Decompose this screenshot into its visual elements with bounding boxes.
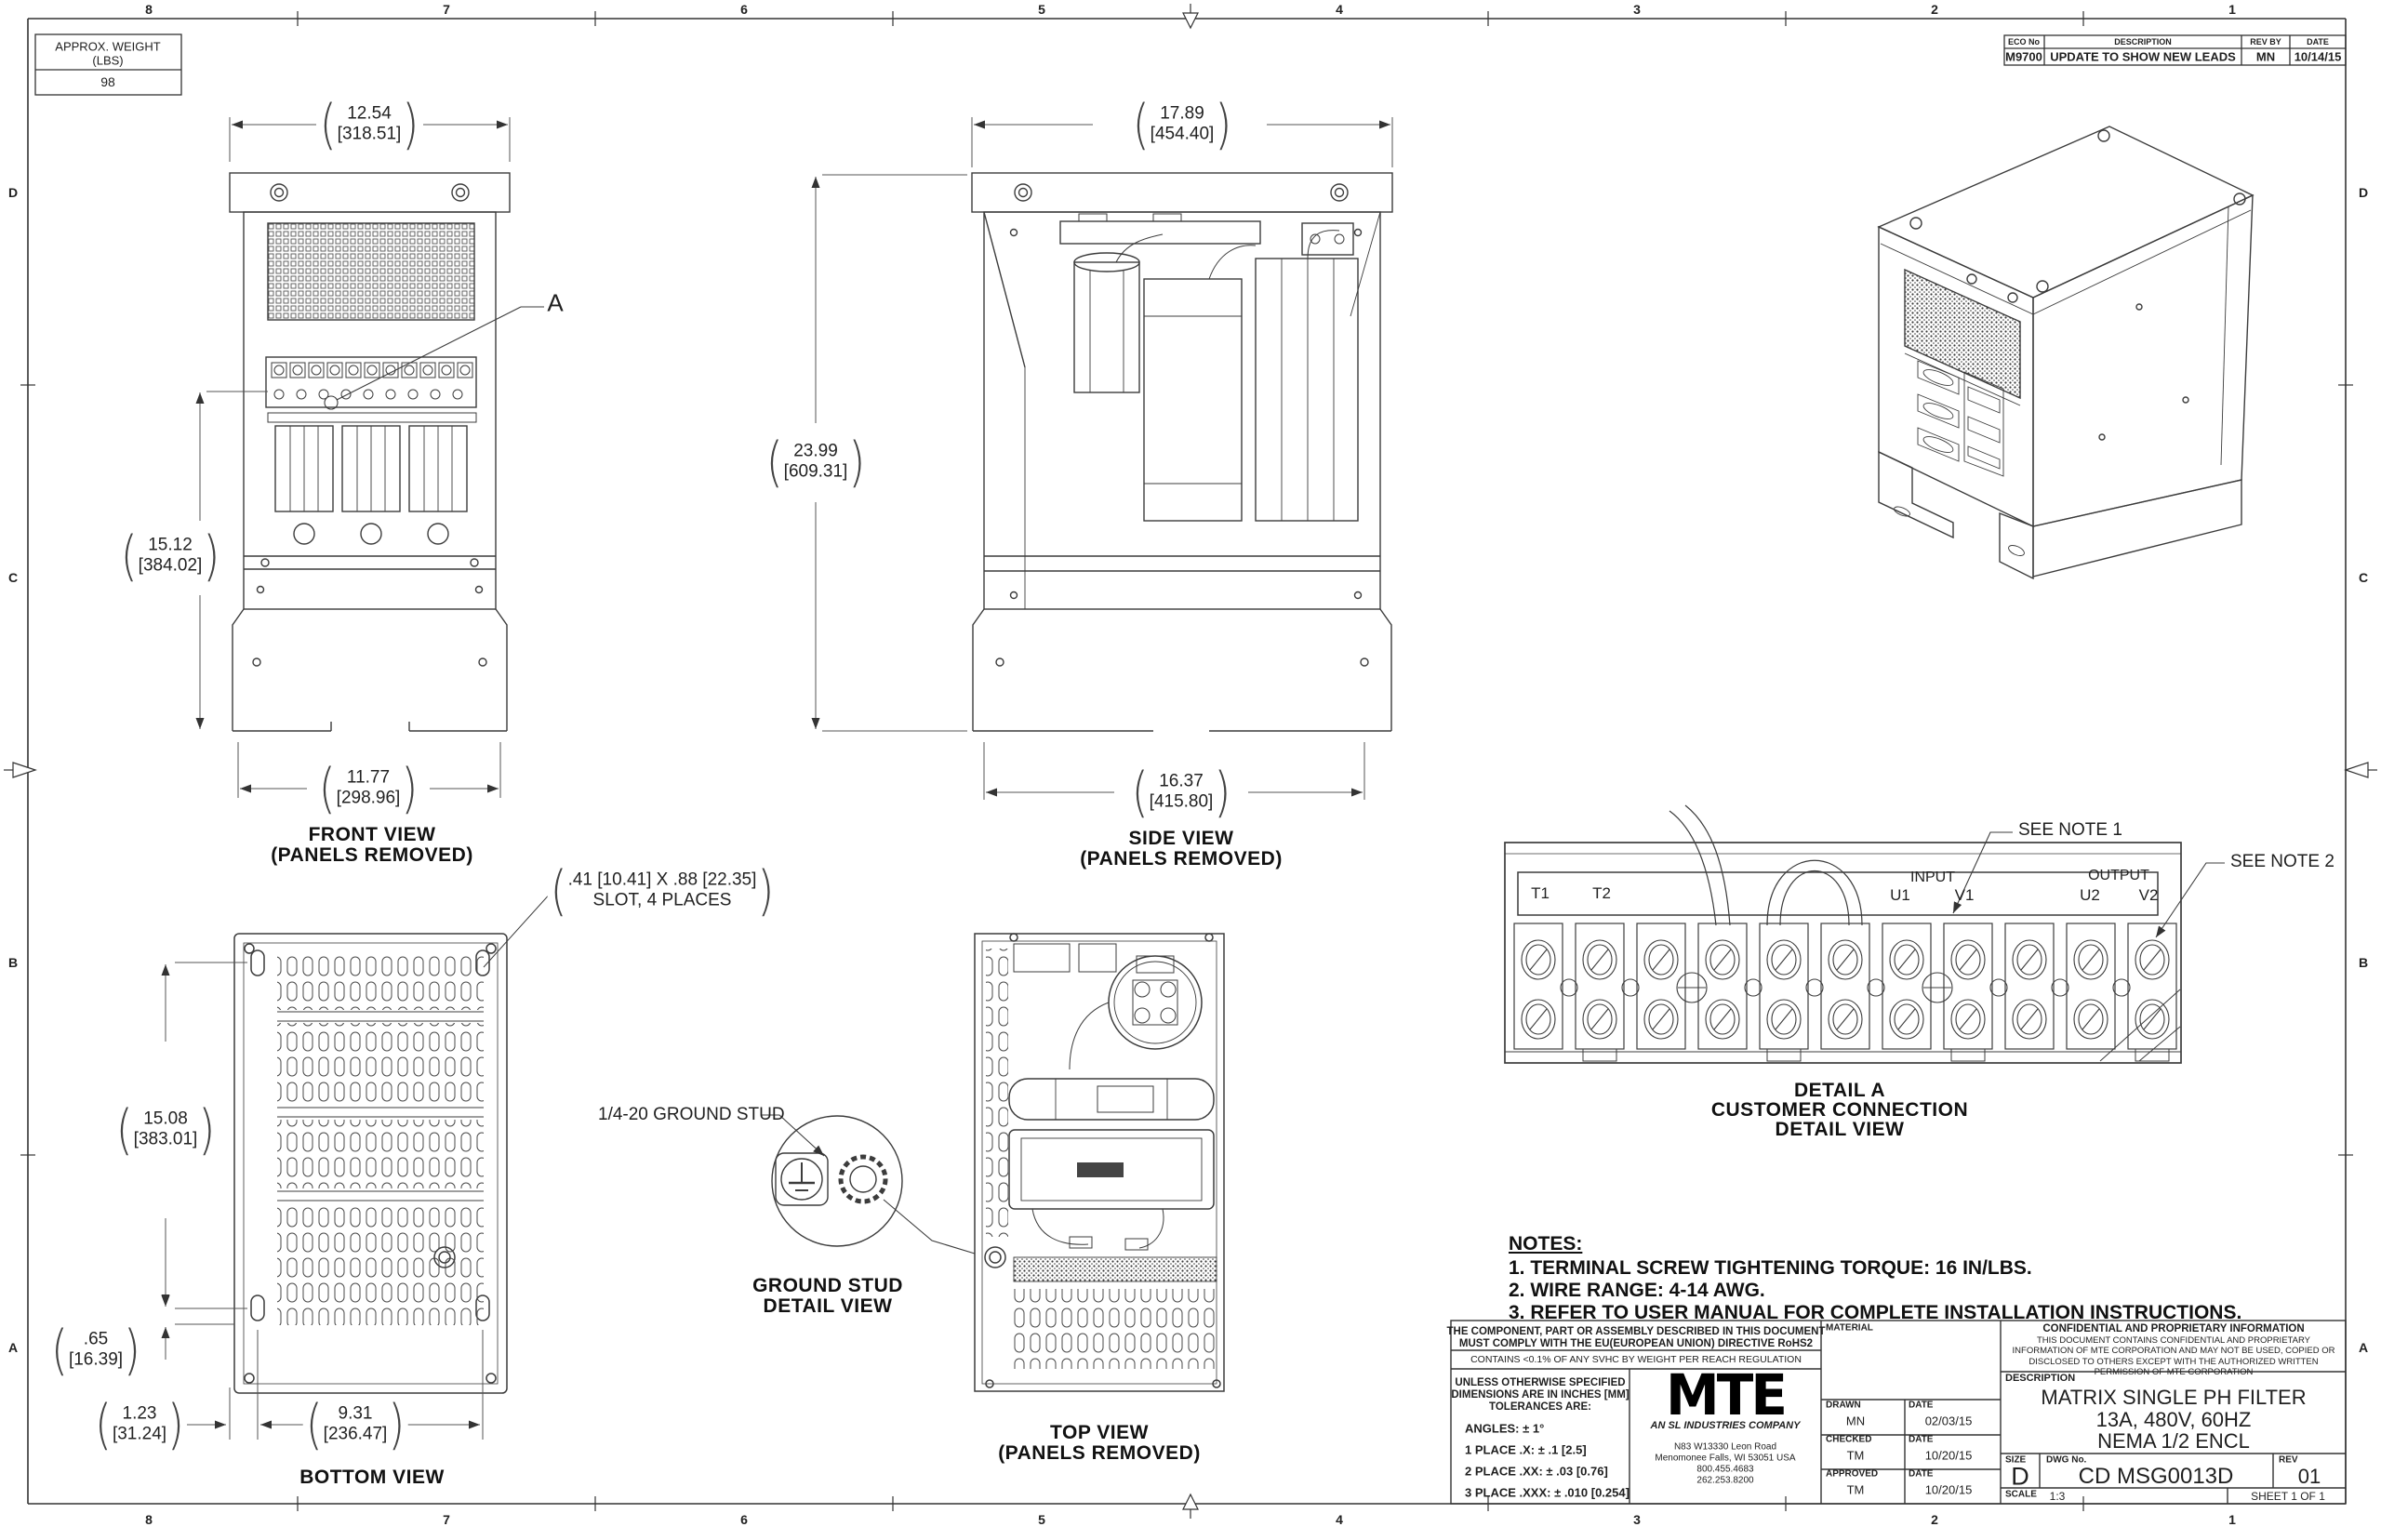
dim-mm: [318.51] [338,125,402,145]
dim-in: 1.23 [123,1404,157,1425]
top-view-label: TOP VIEW [1050,1422,1149,1444]
zone-col-bottom-6: 6 [740,1512,748,1527]
address-line-3: 800.455.4683 [1696,1465,1753,1475]
dim-mm: [298.96] [337,789,401,809]
dim-in: 17.89 [1160,104,1204,125]
logo-tagline: AN SL INDUSTRIES COMPANY [1651,1420,1801,1431]
side-view-label: SIDE VIEW [1128,828,1233,850]
bottom-span-dim: ( 9.31[236.47] ) [303,1401,408,1449]
zone-col-top-8: 8 [145,2,153,17]
side-view-dims [816,117,1392,800]
checked-by: TM [1847,1449,1865,1463]
terminal-label-u1: U1 [1890,886,1910,905]
address-line-2: Menomonee Falls, WI 53051 USA [1655,1454,1795,1464]
dim-mm: [609.31] [784,462,848,483]
ground-stud-callout: 1/4-20 GROUND STUD [598,1105,785,1125]
tol-header-1: UNLESS OTHERWISE SPECIFIED [1455,1377,1625,1388]
rev-label: REV [2279,1455,2298,1466]
paren-icon: ( [319,95,338,153]
bottom-view-drawing [234,934,507,1393]
terminal-label-t2: T2 [1592,884,1611,903]
zone-col-top-3: 3 [1633,2,1641,17]
front-view-label: FRONT VIEW [309,824,436,846]
dim-in: .65 [84,1330,108,1350]
rev-value: 01 [2298,1465,2321,1489]
front-height-dim: ( 15.12[384.02] ) [118,533,223,580]
approved-date-label: DATE [1909,1469,1933,1480]
top-view-drawing [975,934,1224,1391]
checked-date-label: DATE [1909,1435,1933,1445]
dwg-no-value: CD MSG0013D [2079,1464,2234,1490]
ground-stud-label: GROUND STUD [752,1275,903,1297]
paren-icon: ( [120,526,139,585]
terminal-label-t1: T1 [1531,884,1550,903]
note-item-2: 2. WIRE RANGE: 4-14 AWG. [1509,1280,1765,1302]
bottom-height-dim: ( 15.08[383.01] ) [113,1107,219,1154]
bottom-left-dim: ( 1.23[31.24] ) [92,1401,187,1449]
dim-mm: [31.24] [113,1425,166,1445]
slot-note-line1: .41 [10.41] X .88 [22.35] [568,870,757,891]
bottom-view-label: BOTTOM VIEW [299,1467,445,1489]
paren-icon: ( [765,432,784,491]
zone-row-left-c: C [8,570,18,585]
dim-in: 15.12 [148,536,193,556]
tol-angles: ANGLES: ± 1° [1465,1422,1544,1436]
drawn-label: DRAWN [1826,1401,1861,1411]
description-line-1: MATRIX SINGLE PH FILTER [2041,1386,2306,1410]
dim-mm: [454.40] [1151,125,1215,145]
dim-in: 23.99 [793,442,838,462]
scale-label: SCALE [2005,1490,2037,1500]
terminal-label-u2: U2 [2080,886,2100,905]
weight-box-value: 98 [100,74,115,89]
paren-icon: ( [1132,95,1151,153]
dim-mm: [383.01] [134,1130,198,1150]
see-note-1-label: SEE NOTE 1 [2018,820,2122,841]
zone-row-right-b: B [2359,955,2368,970]
zone-col-bottom-3: 3 [1633,1512,1641,1527]
paren-icon: ) [387,1395,406,1454]
approved-label: APPROVED [1826,1469,1878,1480]
rohs-statement-2: MUST COMPLY WITH THE EU(EUROPEAN UNION) … [1459,1338,1813,1349]
tol-3-place: 3 PLACE .XXX: ± .010 [0.254] [1465,1486,1629,1500]
paren-icon: ) [400,759,419,817]
description-line-3: NEMA 1/2 ENCL [2097,1429,2250,1454]
checked-label: CHECKED [1826,1435,1871,1445]
tol-2-place: 2 PLACE .XX: ± .03 [0.76] [1465,1465,1608,1479]
paren-icon: ) [123,1321,141,1379]
eco-header-eco-no: ECO No [2008,37,2040,46]
front-base-dim: ( 11.77[298.96] ) [316,765,421,813]
zone-col-top-7: 7 [443,2,450,17]
paren-icon: ) [401,95,419,153]
drawn-by: MN [1846,1414,1865,1428]
front-view-dims [200,117,510,798]
address-line-4: 262.253.8200 [1696,1476,1753,1486]
terminal-label-v2: V2 [2139,886,2159,905]
detail-a-drawing [1505,805,2225,1063]
iso-view-drawing [1879,126,2253,578]
paren-icon: ( [550,861,568,920]
paren-icon: ) [847,432,866,491]
zone-col-top-4: 4 [1336,2,1343,17]
mte-logo: MTE [1666,1361,1785,1427]
weight-box-title-1: APPROX. WEIGHT [55,40,160,54]
weight-box-title-2: (LBS) [92,54,123,68]
zone-col-top-5: 5 [1038,2,1045,17]
drawn-date: 02/03/15 [1925,1414,1973,1428]
front-width-dim: ( 12.54[318.51] ) [317,101,422,149]
tol-1-place: 1 PLACE .X: ± .1 [2.5] [1465,1443,1587,1457]
eco-value-date: 10/14/15 [2295,50,2342,64]
zone-row-left-d: D [8,185,18,200]
front-view-sublabel: (PANELS REMOVED) [271,844,473,867]
ground-stud-sublabel: DETAIL VIEW [764,1295,893,1318]
side-view-sublabel: (PANELS REMOVED) [1080,848,1283,870]
terminal-label-v1: V1 [1955,886,1975,905]
material-label: MATERIAL [1826,1323,1873,1334]
description-label: DESCRIPTION [2005,1373,2075,1384]
eco-header-description: DESCRIPTION [2114,37,2172,46]
zone-col-bottom-5: 5 [1038,1512,1045,1527]
drawing-sheet: 8 7 6 5 4 3 2 1 8 7 6 5 4 3 2 1 D C B A … [0,0,2381,1540]
slot-note-line2: SLOT, 4 PLACES [593,891,732,911]
side-view-drawing [972,173,1392,731]
note-item-1: 1. TERMINAL SCREW TIGHTENING TORQUE: 16 … [1509,1257,2032,1280]
eco-value-eco-no: M9700 [2005,50,2042,64]
zone-col-top-1: 1 [2228,2,2236,17]
terminal-group-output: OUTPUT [2088,868,2149,884]
dim-mm: [16.39] [69,1350,123,1371]
zone-col-bottom-8: 8 [145,1512,153,1527]
detail-a-callout: A [547,289,563,318]
dim-in: 16.37 [1159,772,1204,792]
paren-icon: ( [1131,763,1150,821]
paren-icon: ( [94,1395,113,1454]
zone-col-top-6: 6 [740,2,748,17]
terminal-group-input: INPUT [1910,870,1955,886]
drawn-date-label: DATE [1909,1401,1933,1411]
paren-icon: ) [166,1395,185,1454]
eco-value-description: UPDATE TO SHOW NEW LEADS [2050,50,2236,64]
slot-note: ( .41 [10.41] X .88 [22.35]SLOT, 4 PLACE… [548,868,778,915]
approved-date: 10/20/15 [1925,1483,1973,1497]
eco-value-rev-by: MN [2256,50,2275,64]
confidential-title: CONFIDENTIAL AND PROPRIETARY INFORMATION [2042,1323,2304,1334]
paren-icon: ) [756,861,775,920]
paren-icon: ) [202,526,220,585]
dim-mm: [415.80] [1150,792,1214,813]
dim-mm: [384.02] [139,556,203,577]
top-view-sublabel: (PANELS REMOVED) [998,1442,1201,1465]
paren-icon: ( [318,759,337,817]
paren-icon: ) [197,1100,216,1159]
sheet-of-label: SHEET 1 OF 1 [2251,1490,2325,1503]
front-view-drawing [230,173,544,731]
scale-value: 1:3 [2050,1490,2066,1503]
zone-row-left-b: B [8,955,18,970]
bottom-offset-dim: ( .65[16.39] ) [48,1327,143,1374]
zone-row-left-a: A [8,1340,18,1355]
tol-header-2: DIMENSIONS ARE IN INCHES [MM] [1451,1389,1629,1401]
eco-header-rev-by: REV BY [2250,37,2281,46]
zone-row-right-c: C [2359,570,2368,585]
tol-header-3: TOLERANCES ARE: [1489,1401,1591,1413]
side-width-dim: ( 17.89[454.40] ) [1130,101,1235,149]
dim-in: 12.54 [347,104,392,125]
zone-col-bottom-4: 4 [1336,1512,1343,1527]
approved-by: TM [1847,1483,1865,1497]
size-value: D [2011,1463,2029,1492]
notes-title: NOTES: [1509,1233,1582,1255]
see-note-2-label: SEE NOTE 2 [2230,852,2334,872]
address-line-1: N83 W13330 Leon Road [1674,1442,1776,1453]
paren-icon: ( [115,1100,134,1159]
zone-col-bottom-2: 2 [1931,1512,1938,1527]
side-base-dim: ( 16.37[415.80] ) [1129,769,1234,816]
zone-row-right-a: A [2359,1340,2368,1355]
paren-icon: ) [1213,763,1231,821]
dim-in: 9.31 [339,1404,373,1425]
note-item-3: 3. REFER TO USER MANUAL FOR COMPLETE INS… [1509,1302,2241,1324]
zone-row-right-d: D [2359,185,2368,200]
confidential-body: THIS DOCUMENT CONTAINS CONFIDENTIAL AND … [2011,1335,2336,1378]
rohs-statement-1: THE COMPONENT, PART OR ASSEMBLY DESCRIBE… [1446,1326,1825,1337]
dim-mm: [236.47] [324,1425,388,1445]
detail-a-title-3: DETAIL VIEW [1776,1119,1905,1141]
dim-in: 15.08 [143,1109,188,1130]
checked-date: 10/20/15 [1925,1449,1973,1463]
zone-col-bottom-1: 1 [2228,1512,2236,1527]
eco-header-date: DATE [2307,37,2329,46]
zone-col-top-2: 2 [1931,2,1938,17]
side-height-dim: ( 23.99[609.31] ) [764,439,869,486]
paren-icon: ) [1214,95,1232,153]
zone-col-bottom-7: 7 [443,1512,450,1527]
dim-in: 11.77 [347,768,390,789]
paren-icon: ( [50,1321,69,1379]
paren-icon: ( [305,1395,324,1454]
ground-stud-detail-drawing [761,1115,975,1254]
